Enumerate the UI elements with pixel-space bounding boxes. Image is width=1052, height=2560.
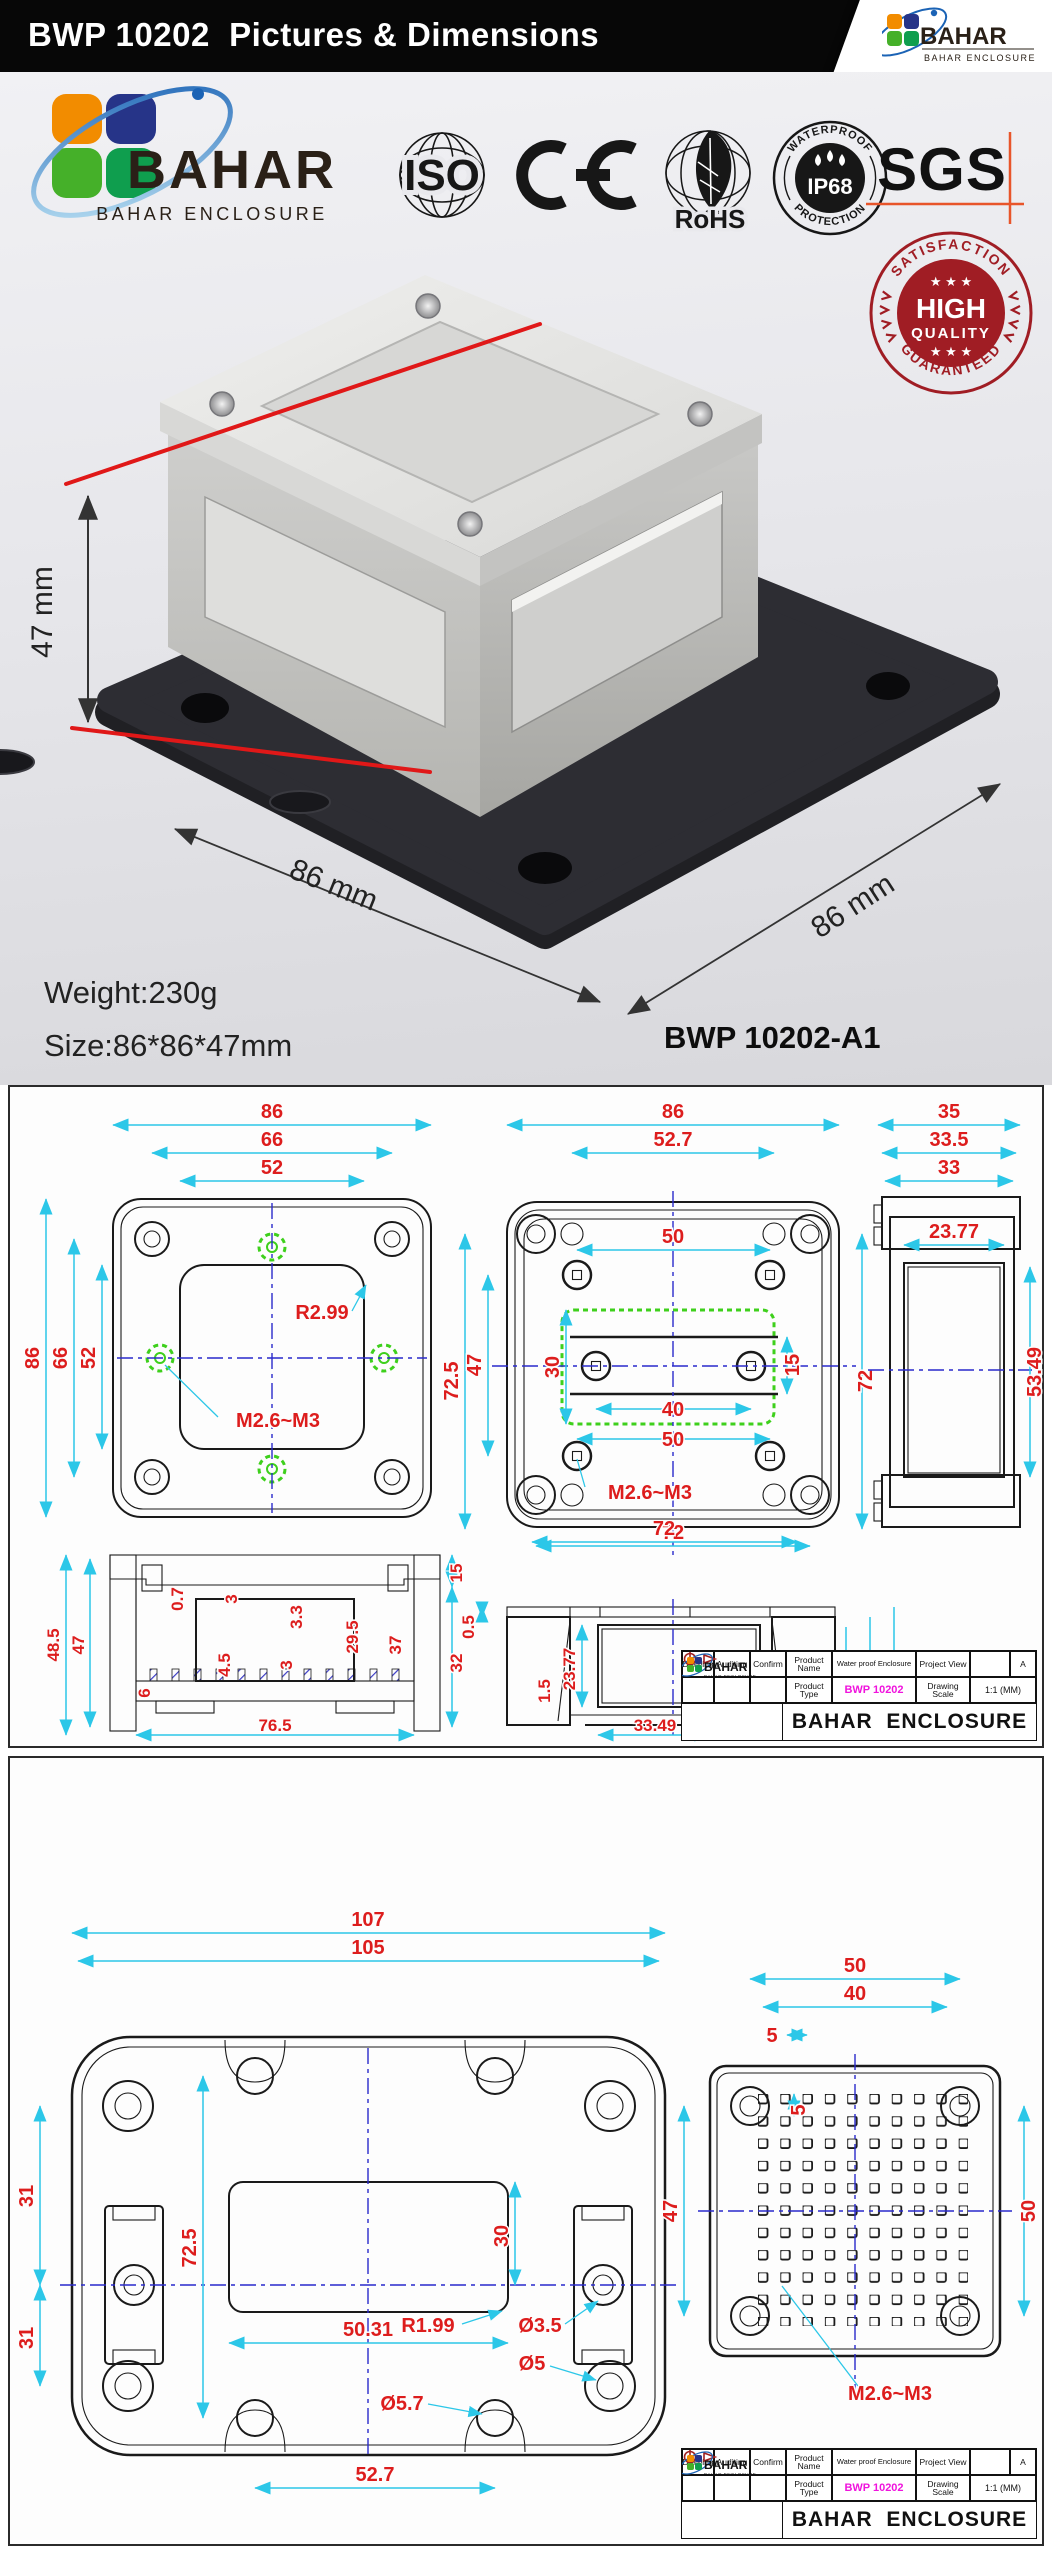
- svg-text:★ ★ ★: ★ ★ ★: [930, 274, 972, 289]
- svg-text:40: 40: [844, 1983, 866, 2005]
- svg-text:76.5: 76.5: [258, 1716, 291, 1735]
- svg-text:105: 105: [351, 1937, 384, 1959]
- svg-text:47: 47: [660, 2200, 682, 2222]
- svg-text:23.77: 23.77: [560, 1648, 579, 1691]
- svg-text:47: 47: [464, 1354, 486, 1376]
- svg-text:Ø5: Ø5: [519, 2353, 546, 2375]
- svg-text:QUALITY: QUALITY: [911, 325, 991, 342]
- svg-text:50: 50: [1018, 2200, 1040, 2222]
- base-plate-view: 107 105 31 31 72.5 30 R1.99 Ø3.5 50.31 Ø…: [16, 1909, 678, 2488]
- title-block-logo: BAHAR BAHAR ENCLOSURE: [682, 1704, 783, 1740]
- svg-text:33.5: 33.5: [930, 1129, 969, 1151]
- ce-mark-icon: CE: [512, 138, 642, 214]
- size-text: Size:86*86*47mm: [44, 1028, 292, 1064]
- svg-text:Ø5.7: Ø5.7: [380, 2393, 423, 2415]
- body-inside-view: 86 52.7 50 30 15 40 50 72.5 47 72: [441, 1101, 877, 1555]
- title-block-logo: BAHAR BAHAR ENCLOSURE: [682, 2502, 783, 2538]
- svg-text:31: 31: [16, 2185, 38, 2207]
- svg-text:15: 15: [447, 1564, 466, 1583]
- brand-sub: BAHAR ENCLOSURE: [96, 204, 328, 224]
- dim-width-label: 86 mm: [285, 853, 382, 918]
- brand-sub: BAHAR ENCLOSURE: [924, 53, 1036, 63]
- brand-logo: BAHAR BAHAR ENCLOSURE: [22, 80, 362, 250]
- svg-text:48.5: 48.5: [44, 1628, 63, 1661]
- svg-text:40: 40: [662, 1399, 684, 1421]
- svg-text:35: 35: [938, 1101, 960, 1123]
- svg-text:0.7: 0.7: [168, 1587, 187, 1611]
- product-type-value: BWP 10202: [832, 1677, 916, 1703]
- svg-text:30: 30: [491, 2225, 513, 2247]
- svg-text:72.5: 72.5: [179, 2229, 201, 2268]
- svg-text:72.5: 72.5: [441, 1362, 463, 1401]
- svg-text:IP68: IP68: [807, 174, 852, 199]
- svg-text:37: 37: [386, 1636, 405, 1655]
- svg-text:SGS: SGS: [877, 136, 1007, 203]
- svg-text:M2.6~M3: M2.6~M3: [608, 1482, 692, 1504]
- svg-text:1.5: 1.5: [535, 1679, 554, 1703]
- bottom-notch-holes: [225, 2400, 525, 2452]
- company-name: BAHAR ENCLOSURE: [783, 2502, 1036, 2538]
- svg-text:50: 50: [844, 1955, 866, 1977]
- svg-text:3.3: 3.3: [287, 1605, 306, 1629]
- svg-text:HIGH: HIGH: [916, 293, 986, 324]
- sgs-logo: SGS: [862, 122, 1042, 232]
- svg-text:33.49: 33.49: [634, 1716, 677, 1735]
- top-notch-holes: [225, 2040, 525, 2094]
- svg-text:52.7: 52.7: [356, 2464, 395, 2486]
- svg-text:ISO: ISO: [404, 151, 480, 200]
- svg-text:86: 86: [662, 1101, 684, 1123]
- svg-text:31: 31: [16, 2327, 38, 2349]
- svg-text:4.5: 4.5: [215, 1653, 234, 1677]
- svg-text:53.49: 53.49: [1024, 1347, 1046, 1397]
- brand-name: BAHAR: [920, 23, 1007, 50]
- svg-text:52.7: 52.7: [654, 1129, 693, 1151]
- svg-text:BAHAR: BAHAR: [704, 2458, 748, 2472]
- svg-text:52: 52: [78, 1347, 100, 1369]
- iso-logo-icon: ISO: [382, 120, 502, 240]
- svg-text:72: 72: [653, 1518, 675, 1540]
- vent-hole-grid: [758, 2094, 968, 2326]
- svg-text:47: 47: [69, 1636, 88, 1655]
- side-view: 35 33.5 33 23.77 53.49: [868, 1101, 1046, 1527]
- header-bar: BWP 10202 Pictures & Dimensions BAHAR BA…: [0, 0, 1052, 72]
- projection-symbol-icon: [970, 2449, 1010, 2475]
- model-number: BWP 10202-A1: [664, 1020, 881, 1056]
- company-name: BAHAR ENCLOSURE: [783, 1704, 1036, 1740]
- svg-text:BAHAR ENCLOSURE: BAHAR ENCLOSURE: [704, 2472, 756, 2477]
- svg-text:5: 5: [766, 2025, 777, 2047]
- svg-text:5: 5: [788, 2104, 810, 2115]
- cross-section-view: 48.5 47 0.7 3 3.3 29.5 37 4.5 3 6 15 32 …: [44, 1555, 466, 1735]
- dimension-drawing-2: 107 105 31 31 72.5 30 R1.99 Ø3.5 50.31 Ø…: [8, 1756, 1044, 2546]
- svg-text:23.77: 23.77: [929, 1221, 979, 1243]
- weight-text: Weight:230g: [44, 975, 218, 1011]
- svg-text:M2.6~M3: M2.6~M3: [848, 2383, 932, 2405]
- svg-text:R2.99: R2.99: [295, 1302, 348, 1324]
- svg-text:66: 66: [50, 1347, 72, 1369]
- svg-text:50.31: 50.31: [343, 2319, 393, 2341]
- svg-text:3: 3: [277, 1660, 296, 1669]
- svg-text:M2.6~M3: M2.6~M3: [236, 1410, 320, 1432]
- projection-symbol-icon: [970, 1651, 1010, 1677]
- svg-text:0.5: 0.5: [459, 1615, 478, 1639]
- title-block: Drawing Auditing Confirm Product Name Wa…: [681, 1650, 1037, 1741]
- svg-text:33: 33: [938, 1157, 960, 1179]
- svg-text:72: 72: [855, 1370, 877, 1392]
- photo-section: 47 mm 86 mm 86 mm BAHAR BAHAR ENCLOSURE: [0, 72, 1052, 1085]
- svg-text:Ø3.5: Ø3.5: [518, 2315, 561, 2337]
- svg-text:3: 3: [222, 1594, 241, 1603]
- perforated-plate-view: 50 40 5 5 47 50 M2.6~M3: [660, 1955, 1040, 2405]
- orbit-dot-icon: [192, 88, 204, 100]
- svg-text:6: 6: [135, 1688, 154, 1697]
- svg-text:50: 50: [662, 1429, 684, 1451]
- header-brand-logo: BAHAR BAHAR ENCLOSURE: [882, 4, 1042, 72]
- svg-text:BAHAR ENCLOSURE: BAHAR ENCLOSURE: [704, 1674, 756, 1679]
- quality-badge: SATISFACTION GUARANTEED ★ ★ ★ HIGH QUALI…: [858, 222, 1044, 408]
- orbit-dot-icon: [931, 10, 937, 16]
- svg-text:BAHAR: BAHAR: [704, 1660, 748, 1674]
- svg-text:30: 30: [542, 1356, 564, 1378]
- svg-text:R1.99: R1.99: [401, 2315, 454, 2337]
- svg-text:RoHS: RoHS: [675, 204, 746, 234]
- dim-depth-label: 86 mm: [805, 867, 900, 945]
- svg-text:107: 107: [351, 1909, 384, 1931]
- svg-text:★ ★ ★: ★ ★ ★: [930, 344, 972, 359]
- svg-text:66: 66: [261, 1129, 283, 1151]
- svg-text:86: 86: [261, 1101, 283, 1123]
- svg-text:52: 52: [261, 1157, 283, 1179]
- dimension-drawing-1: 86 66 52 86 66 52 R2.99 M2.6~M3: [8, 1085, 1044, 1748]
- brand-name: BAHAR: [127, 140, 337, 200]
- datasheet-page: BWP 10202 Pictures & Dimensions BAHAR BA…: [0, 0, 1052, 2560]
- rohs-logo-icon: RoHS: [648, 118, 768, 243]
- svg-text:86: 86: [22, 1347, 44, 1369]
- dim-height-label: 47 mm: [26, 566, 59, 658]
- lid-top-view: 86 66 52 86 66 52 R2.99 M2.6~M3: [22, 1101, 431, 1517]
- svg-text:50: 50: [662, 1226, 684, 1248]
- title-block: Drawing Auditing Confirm Product Name Wa…: [681, 2448, 1037, 2539]
- svg-text:32: 32: [447, 1654, 466, 1673]
- svg-text:29.5: 29.5: [343, 1620, 362, 1653]
- product-type-value: BWP 10202: [832, 2475, 916, 2501]
- svg-text:15: 15: [782, 1354, 804, 1376]
